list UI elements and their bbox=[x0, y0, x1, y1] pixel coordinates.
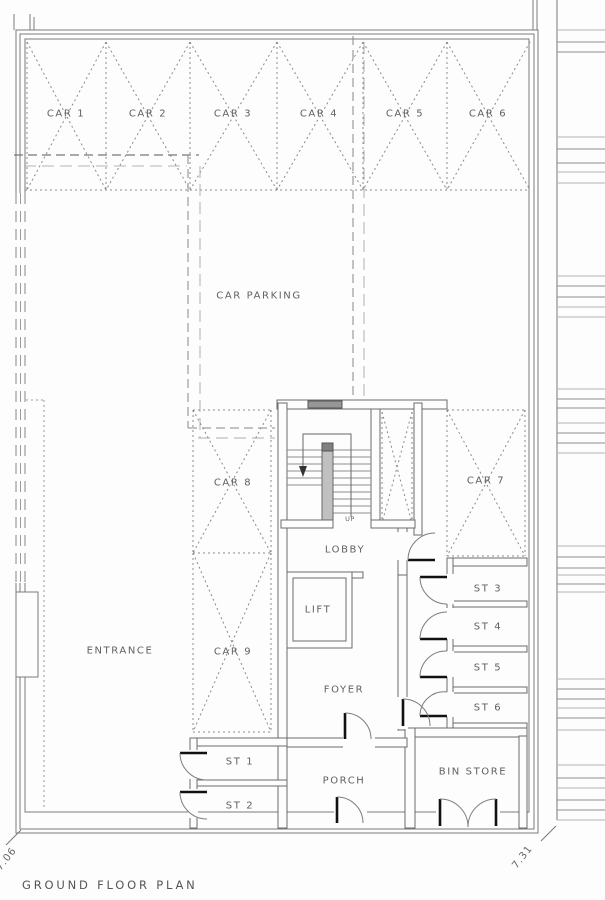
label-car-parking: CAR PARKING bbox=[216, 291, 301, 302]
st4-door-swing bbox=[420, 612, 447, 639]
stair-spine-cap bbox=[322, 443, 333, 451]
st6-door-swing bbox=[420, 692, 447, 716]
adjacent-structure bbox=[557, 0, 605, 820]
label-lobby: LOBBY bbox=[325, 545, 365, 556]
label-entrance: ENTRANCE bbox=[87, 646, 154, 657]
label-car-4: CAR 4 bbox=[300, 109, 338, 120]
left-wall-dashed bbox=[15, 193, 39, 677]
label-car-3: CAR 3 bbox=[214, 109, 252, 120]
lobby-door-swing bbox=[408, 533, 435, 560]
label-car-8: CAR 8 bbox=[214, 478, 252, 489]
label-car-5: CAR 5 bbox=[386, 109, 424, 120]
label-st-2: ST 2 bbox=[226, 801, 254, 812]
label-lift: LIFT bbox=[305, 605, 332, 616]
outer-walls bbox=[14, 0, 538, 833]
overhang-dashed-lines bbox=[14, 36, 364, 810]
label-st-5: ST 5 bbox=[474, 663, 502, 674]
stair-spine-wall bbox=[322, 445, 333, 520]
label-stair-up: UP bbox=[345, 515, 355, 523]
label-car-2: CAR 2 bbox=[129, 109, 167, 120]
parking-bays-top bbox=[25, 42, 530, 190]
label-st-6: ST 6 bbox=[474, 703, 502, 714]
drawing-title: GROUND FLOOR PLAN bbox=[22, 878, 198, 892]
stair-top-threshold bbox=[308, 401, 342, 408]
floor-plan-drawing: CAR 1 CAR 2 CAR 3 CAR 4 CAR 5 CAR 6 CAR … bbox=[0, 0, 605, 900]
parking-bay-car9 bbox=[193, 553, 271, 732]
label-car-6: CAR 6 bbox=[469, 109, 507, 120]
dimension-tick-left bbox=[6, 830, 21, 845]
label-car-1: CAR 1 bbox=[47, 109, 85, 120]
dimension-tick-right bbox=[541, 826, 556, 841]
label-bin-store: BIN STORE bbox=[439, 767, 507, 778]
label-foyer: FOYER bbox=[324, 685, 364, 696]
st3-door-swing bbox=[420, 577, 447, 604]
floor-plan-linework bbox=[0, 0, 605, 900]
foyer-porch-door-swing bbox=[345, 713, 371, 739]
st5-door-swing bbox=[420, 651, 447, 677]
hatched-strip-beside-stair bbox=[382, 412, 412, 523]
label-porch: PORCH bbox=[323, 776, 366, 787]
label-car-7: CAR 7 bbox=[467, 476, 505, 487]
label-st-4: ST 4 bbox=[474, 622, 502, 633]
label-st-3: ST 3 bbox=[474, 584, 502, 595]
label-st-1: ST 1 bbox=[226, 757, 254, 768]
staircase bbox=[287, 401, 371, 520]
label-car-9: CAR 9 bbox=[214, 647, 252, 658]
